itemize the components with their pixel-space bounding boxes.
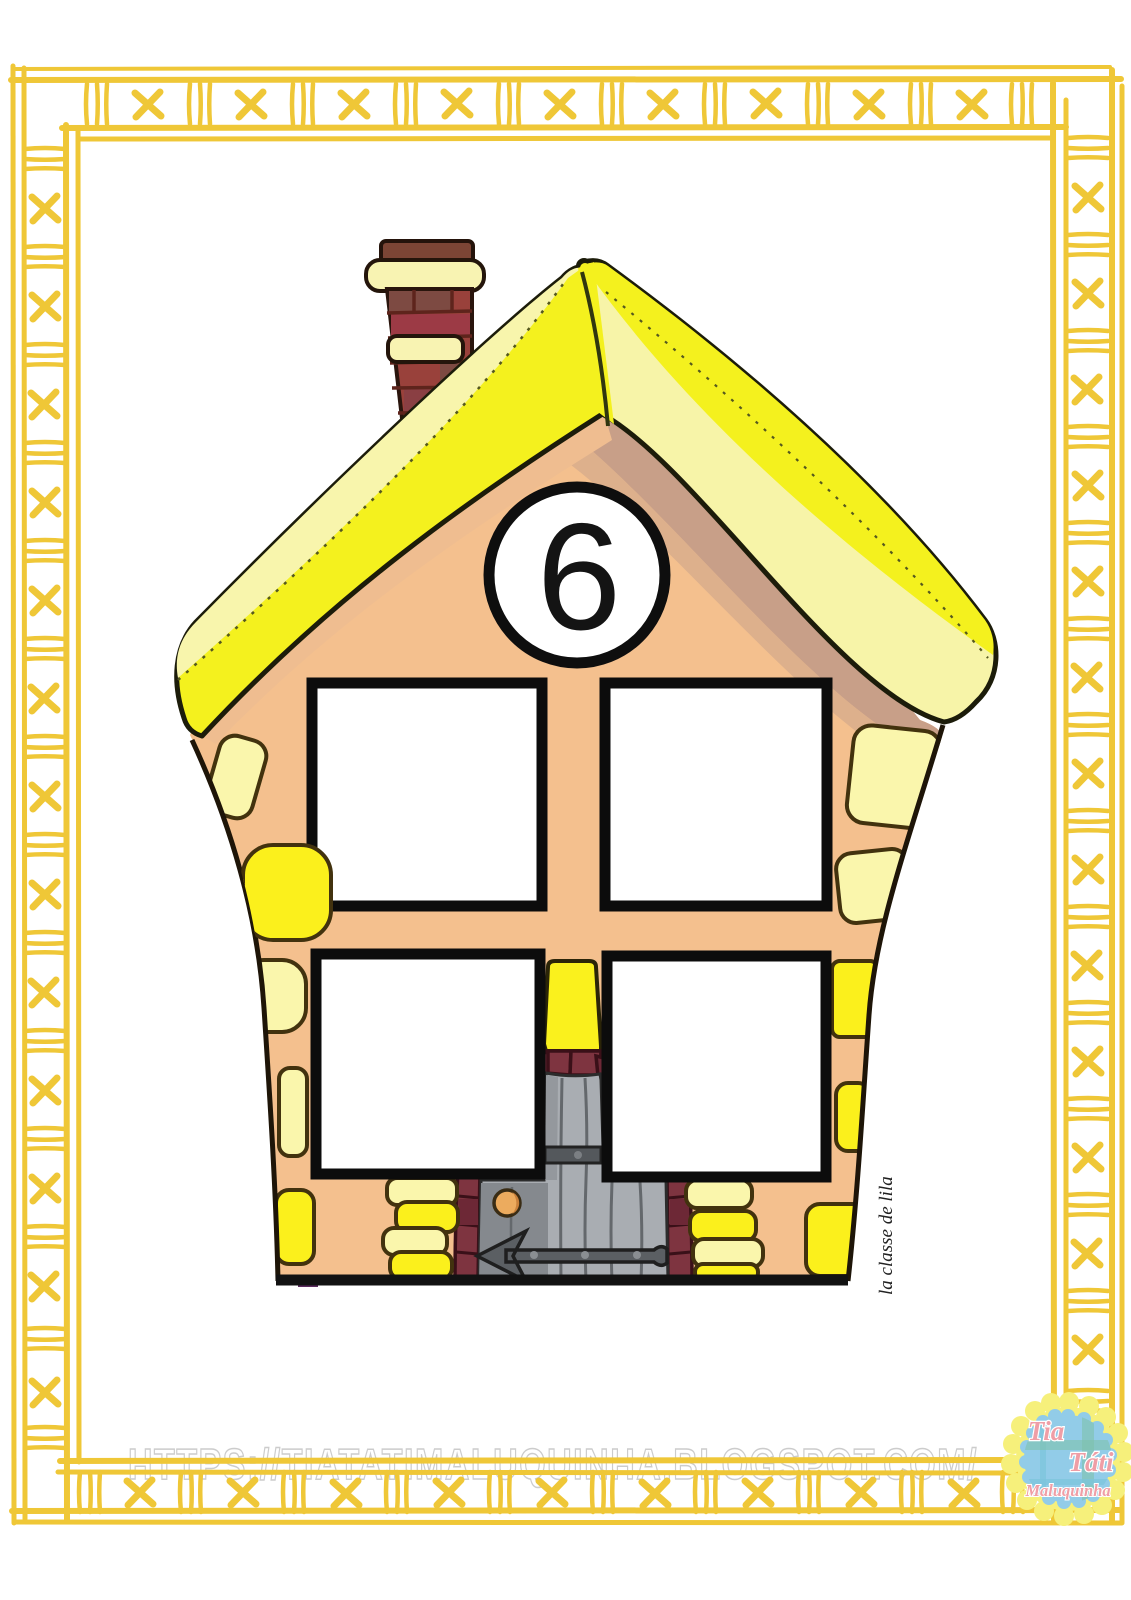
- svg-text:la classe de lila: la classe de lila: [876, 1176, 897, 1295]
- svg-text:Tia: Tia: [1028, 1416, 1065, 1446]
- svg-text:Táti: Táti: [1069, 1447, 1114, 1477]
- svg-text:Maluquinha: Maluquinha: [1024, 1481, 1110, 1500]
- svg-text:6: 6: [537, 492, 622, 662]
